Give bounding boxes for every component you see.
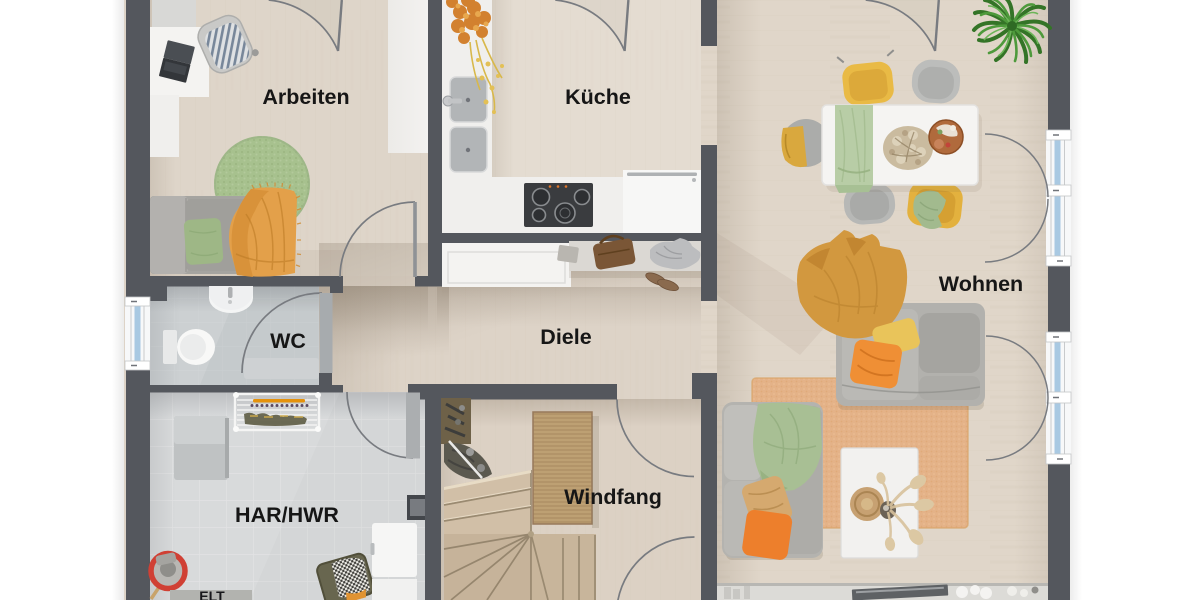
svg-text:ELT: ELT bbox=[199, 588, 225, 600]
svg-text:Küche: Küche bbox=[565, 85, 631, 109]
svg-text:Arbeiten: Arbeiten bbox=[262, 85, 349, 109]
svg-text:Diele: Diele bbox=[540, 325, 591, 349]
svg-text:HAR/HWR: HAR/HWR bbox=[235, 503, 339, 527]
svg-text:WC: WC bbox=[270, 329, 306, 353]
svg-text:Wohnen: Wohnen bbox=[939, 272, 1023, 296]
svg-text:Windfang: Windfang bbox=[564, 485, 662, 509]
